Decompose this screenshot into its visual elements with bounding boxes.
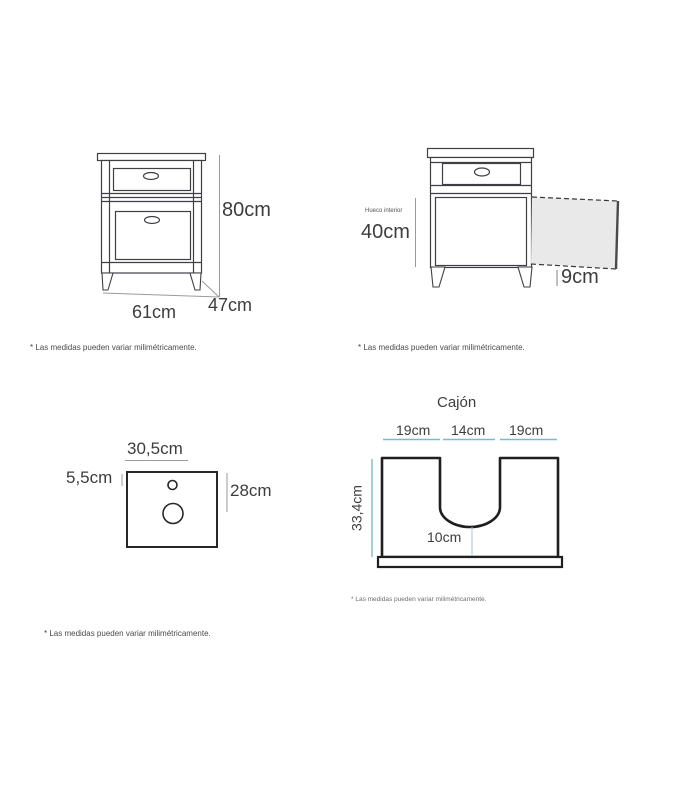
drawer-diagram-drawing (340, 390, 590, 590)
width-dimension-line (103, 293, 219, 297)
interior-gap-label: Hueco interior (365, 208, 402, 215)
dimension-sheet: 80cm 61cm 47cm * Las medidas pueden vari… (0, 0, 700, 800)
cabinet-leg (431, 267, 445, 287)
drawer-base-rail (378, 557, 562, 567)
drawer-cutout-shape (382, 458, 558, 557)
door-depth-label: 9cm (561, 266, 599, 288)
disclaimer-drawer: * Las medidas pueden variar milimétricam… (351, 596, 486, 603)
faucet-offset-label: 5,5cm (66, 469, 112, 488)
front-width-label: 61cm (132, 303, 176, 323)
bottom-drawer-front (116, 212, 191, 260)
faucet-hole (168, 481, 177, 490)
countertop-width-label: 30,5cm (127, 440, 183, 459)
interior-height-label: 40cm (361, 221, 410, 243)
front-depth-label: 47cm (208, 296, 252, 316)
open-door-panel (531, 197, 618, 269)
drawer-notch-bottom-label: 10cm (427, 530, 461, 545)
top-drawer-front (443, 164, 521, 185)
disclaimer-interior: * Las medidas pueden variar milimétricam… (358, 343, 525, 352)
cabinet-leg (102, 273, 113, 290)
cabinet-top-board (98, 154, 206, 161)
drawer-notch-width-label: 14cm (451, 423, 485, 438)
drawer-title: Cajón (437, 395, 476, 412)
drawer-right-width-label: 19cm (509, 423, 543, 438)
drawer-height-label: 33,4cm (349, 485, 364, 531)
cabinet-leg (518, 267, 532, 287)
front-height-label: 80cm (222, 199, 271, 221)
countertop-depth-label: 28cm (230, 482, 272, 501)
disclaimer-front: * Las medidas pueden variar milimétricam… (30, 343, 197, 352)
drain-hole (163, 504, 183, 524)
drawer-left-width-label: 19cm (396, 423, 430, 438)
cabinet-top-board (428, 149, 534, 158)
disclaimer-countertop: * Las medidas pueden variar milimétricam… (44, 629, 211, 638)
cabinet-leg (190, 273, 201, 290)
